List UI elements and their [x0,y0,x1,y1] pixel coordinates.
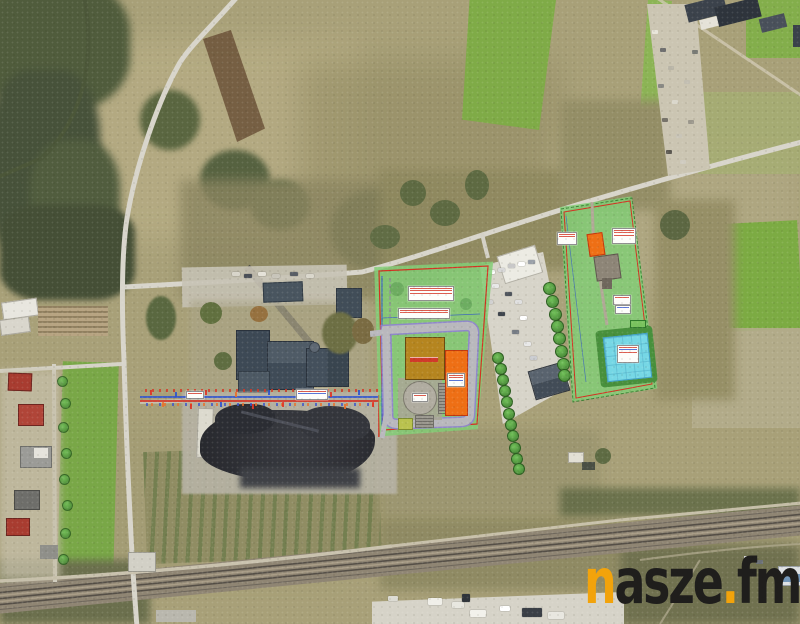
tree-clump [214,352,232,370]
watermark-fm: fm [737,545,800,618]
depot-item [688,120,694,124]
survey-mark [344,404,346,409]
tree [501,396,513,408]
plant-building [306,348,349,387]
site-plan-right [552,192,664,408]
survey-mark [252,404,254,409]
vehicle [518,262,525,266]
label-box [398,308,450,319]
corridor-line-blue [140,396,392,398]
hedge-tree [58,422,69,433]
label-box [412,393,428,402]
depot-item [662,118,668,122]
hedge-tree [61,448,72,459]
vehicle [528,260,535,264]
label-box [296,389,328,400]
vehicle [530,356,537,360]
coal-spill [240,468,360,488]
depot-item [666,150,672,154]
corridor-ticks-top [140,389,392,392]
house-red-roof [6,518,30,536]
tree [513,463,525,475]
shed [128,552,156,572]
survey-mark [175,392,177,397]
house-red-roof [8,373,33,392]
small-building [415,415,434,428]
depot-item [652,30,658,34]
truck [522,608,542,617]
tree-clump [146,296,176,340]
depot-item [660,48,666,52]
depot-item [672,100,678,104]
truck [462,594,470,602]
main-hall-label-strip [410,357,438,362]
watermark-asze: asze [614,545,721,618]
ring-road-entry [370,332,386,334]
label-box-green [630,320,646,328]
plan-tree [460,298,472,310]
truck [548,612,564,619]
vehicle [306,274,314,278]
lumber-stacks [38,306,108,336]
label-box [447,373,465,387]
truck [388,596,398,601]
plan-tree [390,282,404,296]
depot-item [684,80,690,84]
farm-shed-dark [582,462,595,470]
label-box [617,345,639,363]
depot-item [668,66,674,70]
corridor-ticks-bottom [140,403,392,406]
truck [470,610,486,617]
hedge-tree [57,376,68,387]
shed [156,610,196,622]
hedge-tree [60,398,71,409]
vehicle [290,272,298,276]
tree [507,430,519,442]
hedge-tree [58,554,69,565]
watermark-logo: nasze.fm [584,551,800,613]
vehicle [258,272,266,276]
farm-building [793,25,800,47]
hedge-tree [59,474,70,485]
label-box [186,391,204,399]
survey-mark [282,402,284,407]
label-box [613,295,631,305]
parking-entrance [482,233,488,258]
truck [500,606,510,611]
survey-mark [205,390,207,395]
survey-mark [330,392,332,397]
survey-mark [235,392,237,397]
watermark-dot: . [722,545,737,618]
shed [40,545,58,559]
survey-mark [150,390,152,395]
survey-mark [268,390,270,395]
label-box [557,232,577,245]
aerial-photo: nasze.fm [0,0,800,624]
depot-item [680,160,686,164]
vehicle [232,272,240,276]
tree-clump [200,302,222,324]
house-dark [14,490,40,510]
truck [452,602,464,608]
vehicle [244,274,252,278]
survey-mark [220,402,222,407]
depot-item [658,84,664,88]
plant-building [263,281,304,302]
dark-pad [602,278,612,289]
label-box [615,305,631,314]
tree-clump [595,448,611,464]
hedge-tree [60,528,71,539]
label-box [408,286,454,301]
watermark-n: n [584,545,614,618]
truck [428,598,442,605]
house-red-roof [18,404,44,426]
hedge-tree [62,500,73,511]
small-orange-building [586,232,605,257]
depot-item [692,50,698,54]
greenery-patch [398,418,413,430]
vehicle [520,316,527,320]
survey-mark [358,390,360,395]
vehicle [515,300,522,304]
survey-mark [190,404,192,409]
house-white-roof [34,448,48,458]
survey-mark [162,402,164,407]
vehicle [524,342,531,346]
label-box [612,228,636,244]
depot-item [676,134,682,138]
tree-clump-autumn [250,306,268,322]
chimney [309,342,320,353]
hedge-line [0,0,88,178]
corridor-line-red [140,400,392,402]
vehicle [272,274,280,278]
